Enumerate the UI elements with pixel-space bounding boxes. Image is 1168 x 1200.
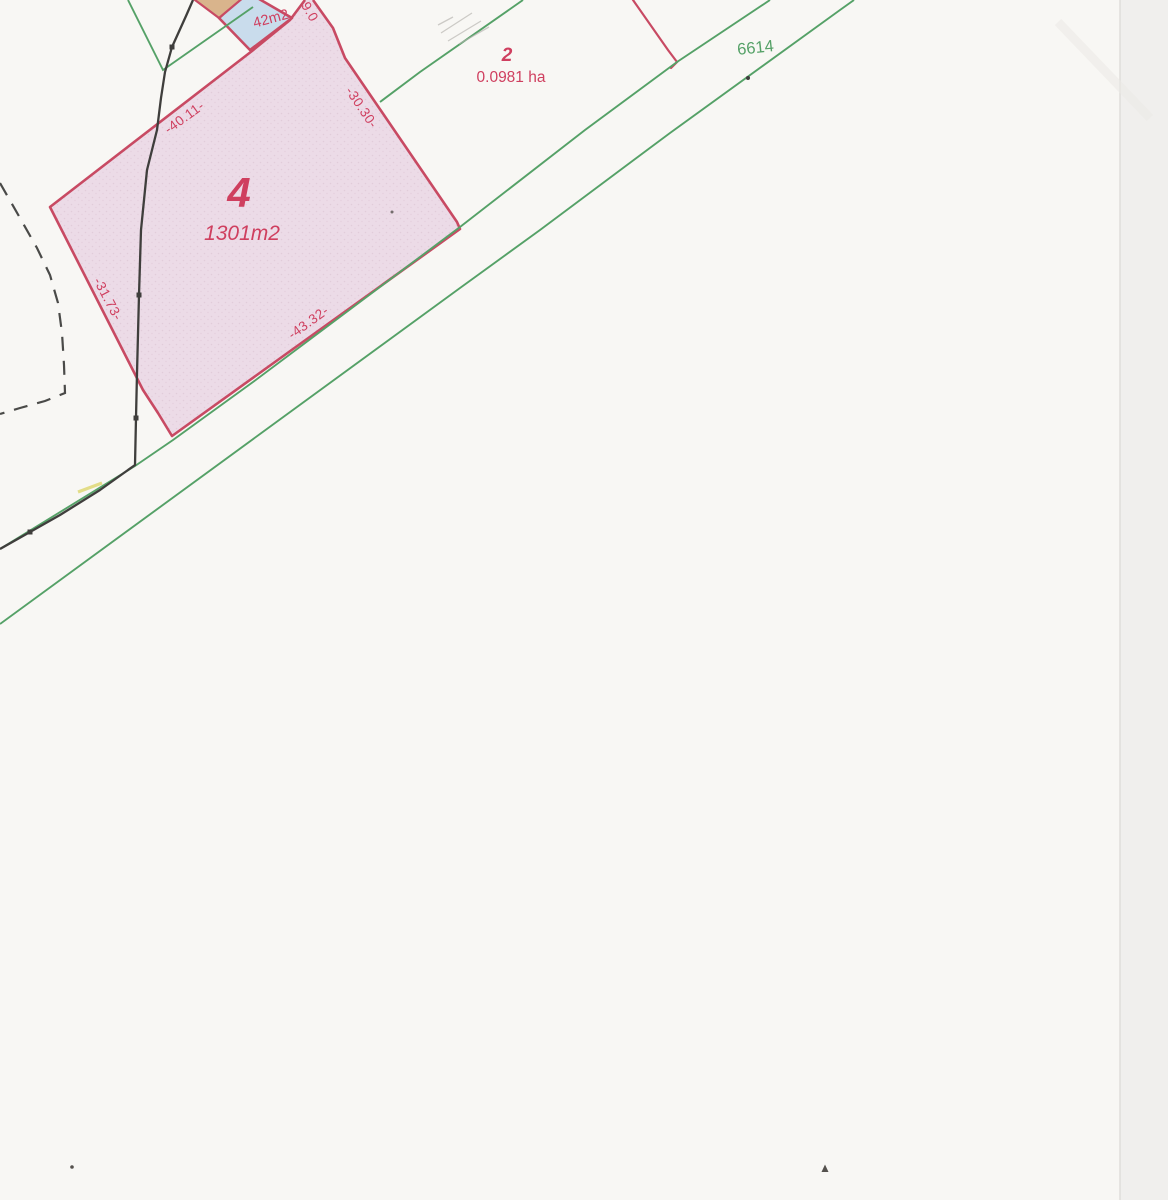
road-survey-dot <box>746 76 750 80</box>
cadastral-map: 4 1301m2 -40.11- -30.30- -31.73- -43.32-… <box>0 0 1168 1200</box>
parcel2-number-label: 2 <box>501 45 513 66</box>
node-square <box>134 416 139 421</box>
parcel2-area-label: 0.0981 ha <box>477 69 546 86</box>
road-parcel-number-label: 6614 <box>736 37 774 59</box>
parcel4-area-label: 1301m2 <box>204 222 280 245</box>
node-square <box>137 293 142 298</box>
dust-speck <box>70 1165 74 1169</box>
parcel4-number-label: 4 <box>226 169 250 216</box>
node-square <box>28 530 33 535</box>
node-square <box>170 45 175 50</box>
dust-speck <box>391 211 394 214</box>
scanned-cadastral-page: 4 1301m2 -40.11- -30.30- -31.73- -43.32-… <box>0 0 1168 1200</box>
scanner-margin-band <box>1120 0 1168 1200</box>
